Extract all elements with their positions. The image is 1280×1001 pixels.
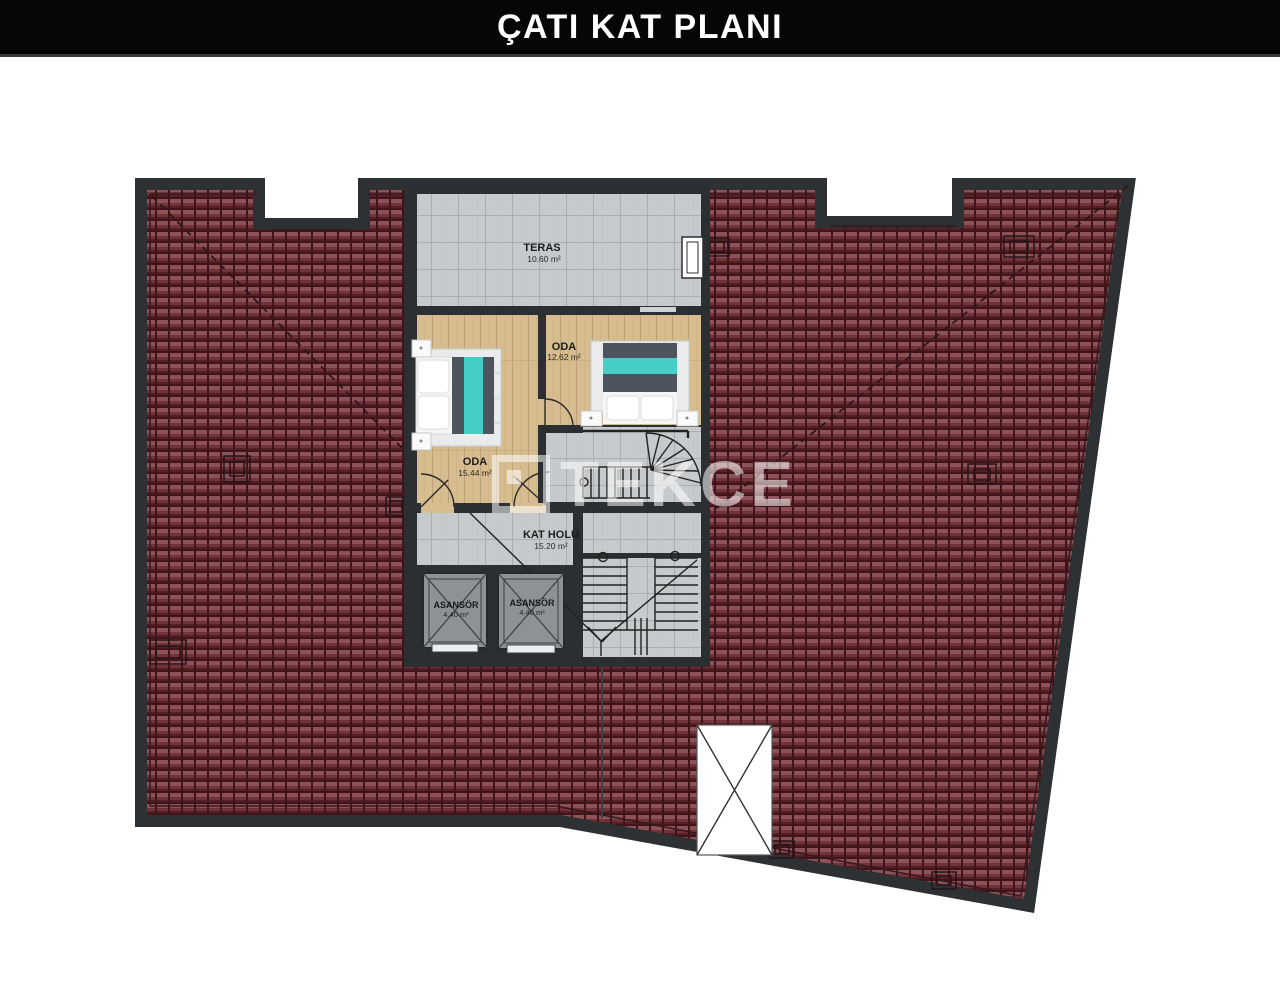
elevator-right-area: 4.40 m²: [519, 608, 545, 617]
bed-right-room: [581, 341, 698, 426]
hall-label: KAT HOLÜ: [523, 528, 579, 541]
page-title: ÇATI KAT PLANI: [497, 8, 783, 47]
wall-window-slot: [640, 307, 676, 312]
room-left-label: ODA: [463, 456, 488, 468]
terrace-label: TERAS: [523, 242, 560, 254]
room-right-area: 12.62 m²: [547, 352, 581, 362]
roof-shaft: [697, 725, 772, 855]
door-opening-mid: [510, 503, 546, 513]
title-bar: ÇATI KAT PLANI: [0, 0, 1280, 57]
door-opening-left: [421, 503, 454, 513]
floor-plan-canvas: TERAS 10.60 m² ODA 15.44 m² ODA 12.62 m²…: [0, 0, 1280, 1001]
bed-left-room: [412, 340, 501, 450]
room-right-bottom-wall: [546, 425, 583, 433]
terrace-area: 10.60 m²: [527, 254, 561, 264]
elevator-left-label: ASANSÖR: [433, 600, 479, 610]
elevator-left-area: 4.40 m²: [443, 610, 469, 619]
terrace-window: [682, 237, 703, 278]
room-left-area: 15.44 m²: [458, 468, 492, 478]
elevator-right-label: ASANSÖR: [509, 598, 555, 608]
hall-area: 15.20 m²: [534, 541, 568, 551]
